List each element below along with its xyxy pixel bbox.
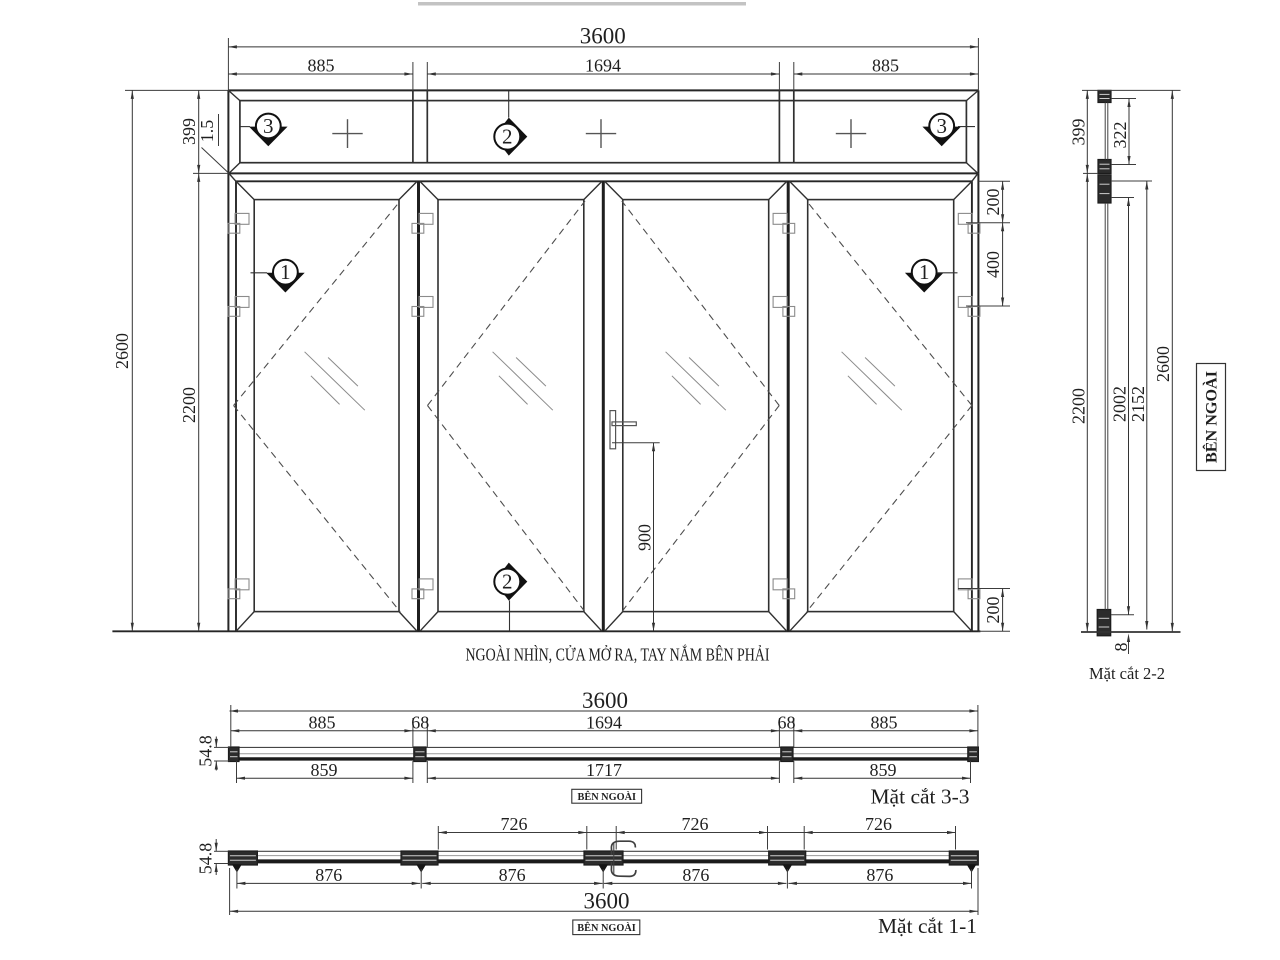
svg-text:859: 859 [870,760,897,780]
svg-text:1: 1 [919,260,930,284]
svg-text:2: 2 [502,570,513,594]
svg-text:322: 322 [1110,122,1130,149]
svg-text:68: 68 [411,713,429,733]
svg-text:1: 1 [280,260,291,284]
svg-text:2600: 2600 [1153,346,1173,382]
svg-text:200: 200 [983,189,1003,216]
svg-text:2600: 2600 [112,333,132,369]
svg-text:400: 400 [983,251,1003,278]
svg-text:NGOÀI NHÌN, CỬA MỞ RA, TAY NẮM: NGOÀI NHÌN, CỬA MỞ RA, TAY NẮM BÊN PHẢI [466,644,770,665]
svg-text:BÊN NGOÀI: BÊN NGOÀI [578,791,637,803]
svg-text:3600: 3600 [584,888,630,913]
svg-text:3600: 3600 [580,24,626,49]
svg-text:2: 2 [502,125,513,149]
svg-text:3: 3 [263,114,274,138]
svg-text:399: 399 [1069,119,1089,146]
svg-text:399: 399 [179,118,199,145]
svg-text:3: 3 [936,114,947,138]
svg-text:876: 876 [315,865,342,885]
svg-text:1717: 1717 [586,760,622,780]
svg-text:876: 876 [866,865,893,885]
svg-text:726: 726 [682,814,709,834]
svg-text:876: 876 [499,865,526,885]
svg-text:2002: 2002 [1110,386,1130,422]
svg-text:Mặt cắt 2-2: Mặt cắt 2-2 [1089,664,1165,683]
svg-text:1694: 1694 [585,55,621,75]
svg-text:200: 200 [983,597,1003,624]
svg-text:885: 885 [872,55,899,75]
svg-text:1694: 1694 [586,713,622,733]
svg-text:54.8: 54.8 [196,843,216,875]
svg-text:1.5: 1.5 [197,120,217,143]
svg-text:BÊN NGOÀI: BÊN NGOÀI [1202,371,1221,463]
svg-text:2200: 2200 [179,387,199,423]
svg-text:BÊN NGOÀI: BÊN NGOÀI [577,922,636,934]
svg-text:68: 68 [778,713,796,733]
svg-text:859: 859 [311,760,338,780]
svg-text:54.8: 54.8 [196,735,216,767]
svg-text:885: 885 [871,713,898,733]
svg-text:876: 876 [682,865,709,885]
svg-text:8: 8 [1111,643,1131,652]
svg-text:885: 885 [308,55,335,75]
svg-text:2152: 2152 [1128,386,1148,422]
svg-text:Mặt cắt 1-1: Mặt cắt 1-1 [878,914,977,938]
svg-text:3600: 3600 [582,688,628,713]
svg-text:726: 726 [501,814,528,834]
svg-text:900: 900 [635,524,655,551]
svg-text:2200: 2200 [1069,388,1089,424]
svg-text:885: 885 [309,713,336,733]
svg-text:726: 726 [865,814,892,834]
svg-text:Mặt cắt 3-3: Mặt cắt 3-3 [870,785,969,809]
